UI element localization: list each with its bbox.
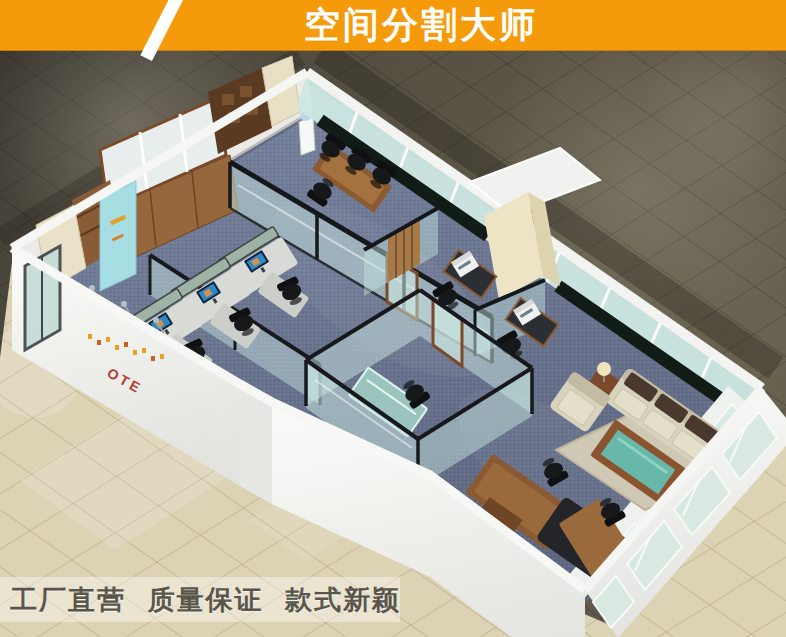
tagline-text: 工厂直营 质量保证 款式新颖: [10, 582, 401, 618]
title-banner: 空间分割大师: [0, 0, 786, 51]
product-image: 空间分割大师: [0, 0, 786, 637]
office-render: OTE: [0, 50, 786, 637]
tagline-band: 工厂直营 质量保证 款式新颖: [0, 577, 400, 622]
page-title: 空间分割大师: [248, 1, 538, 50]
